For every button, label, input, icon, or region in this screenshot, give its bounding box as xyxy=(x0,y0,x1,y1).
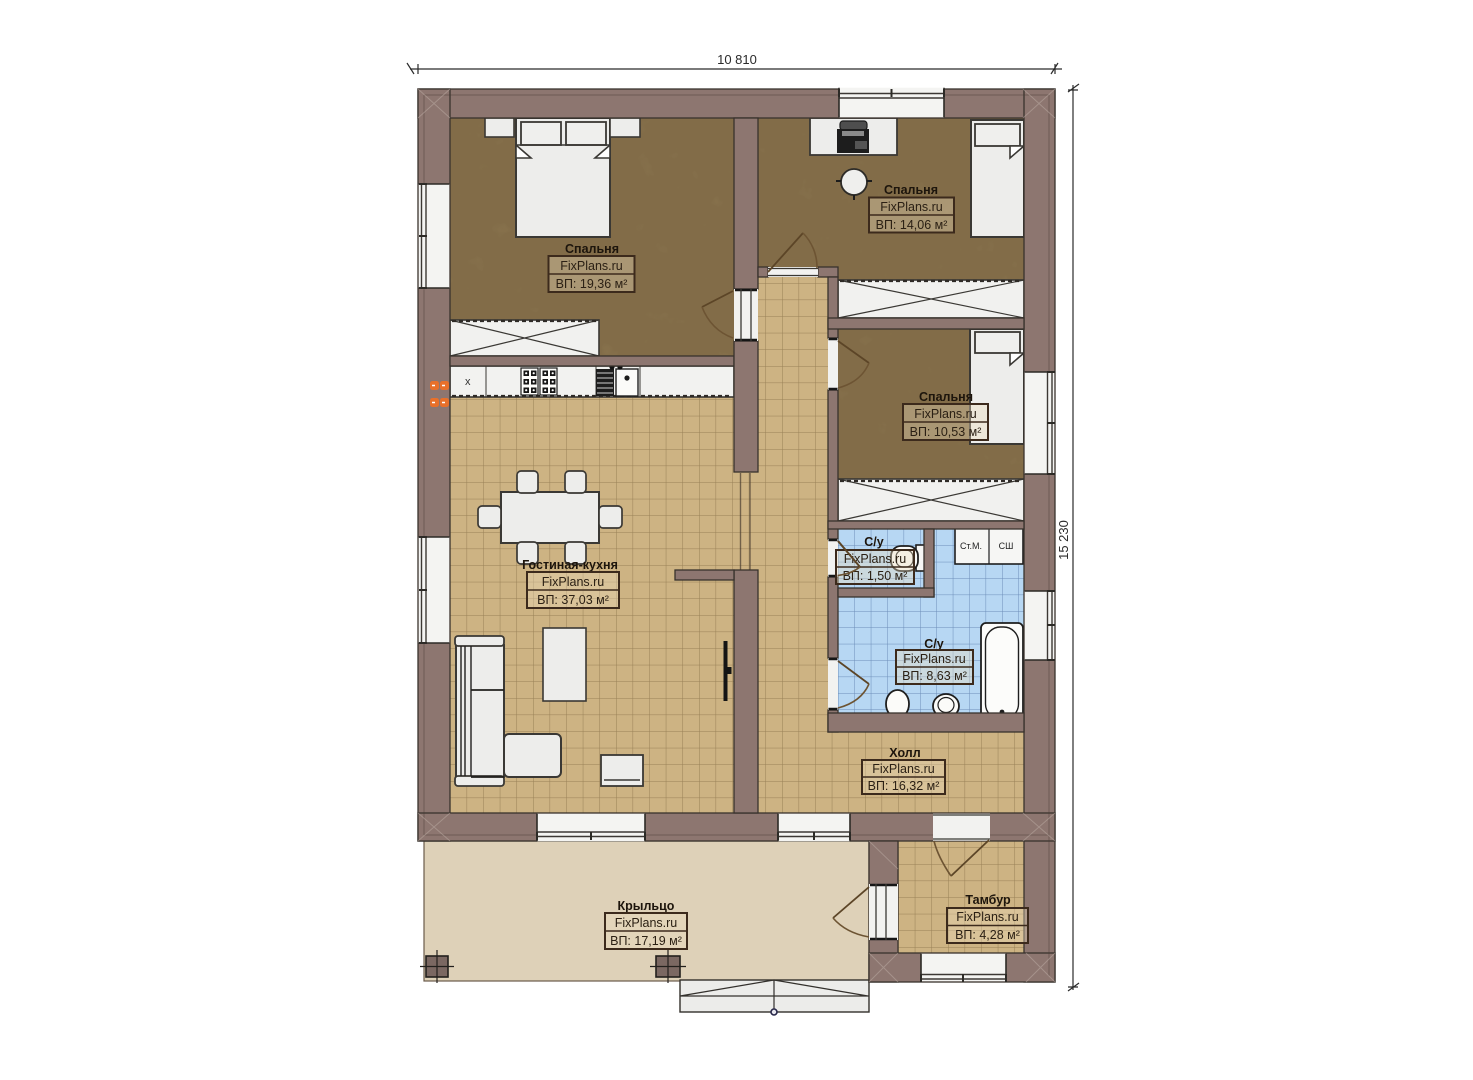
svg-text:Спальня: Спальня xyxy=(919,390,973,404)
svg-text:ВП: 8,63 м²: ВП: 8,63 м² xyxy=(902,669,967,683)
svg-text:10 810: 10 810 xyxy=(717,52,757,67)
svg-text:Спальня: Спальня xyxy=(884,183,938,197)
svg-text:FixPlans.ru: FixPlans.ru xyxy=(615,916,678,930)
svg-text:ВП: 19,36 м²: ВП: 19,36 м² xyxy=(556,277,628,291)
svg-text:Холл: Холл xyxy=(889,746,920,760)
svg-text:FixPlans.ru: FixPlans.ru xyxy=(560,259,623,273)
svg-text:С/у: С/у xyxy=(864,535,884,549)
svg-text:СШ: СШ xyxy=(999,541,1014,551)
svg-text:ВП: 14,06 м²: ВП: 14,06 м² xyxy=(876,218,948,232)
svg-text:ВП: 17,19 м²: ВП: 17,19 м² xyxy=(610,934,682,948)
svg-text:FixPlans.ru: FixPlans.ru xyxy=(914,407,977,421)
svg-text:FixPlans.ru: FixPlans.ru xyxy=(956,910,1019,924)
svg-text:ВП: 37,03 м²: ВП: 37,03 м² xyxy=(537,593,609,607)
svg-text:ВП: 10,53 м²: ВП: 10,53 м² xyxy=(910,425,982,439)
svg-text:FixPlans.ru: FixPlans.ru xyxy=(903,652,966,666)
svg-text:x: x xyxy=(465,376,471,388)
svg-text:Крыльцо: Крыльцо xyxy=(618,899,675,913)
svg-text:Ст.М.: Ст.М. xyxy=(960,541,982,551)
svg-text:FixPlans.ru: FixPlans.ru xyxy=(872,762,935,776)
svg-text:Спальня: Спальня xyxy=(565,242,619,256)
svg-text:Гостиная-кухня: Гостиная-кухня xyxy=(522,558,618,572)
svg-text:FixPlans.ru: FixPlans.ru xyxy=(880,200,943,214)
svg-text:С/у: С/у xyxy=(924,637,944,651)
svg-text:ВП: 16,32 м²: ВП: 16,32 м² xyxy=(868,779,940,793)
svg-text:FixPlans.ru: FixPlans.ru xyxy=(542,575,605,589)
svg-text:ВП: 4,28 м²: ВП: 4,28 м² xyxy=(955,928,1020,942)
svg-text:15 230: 15 230 xyxy=(1056,520,1071,560)
svg-text:Тамбур: Тамбур xyxy=(965,893,1011,907)
